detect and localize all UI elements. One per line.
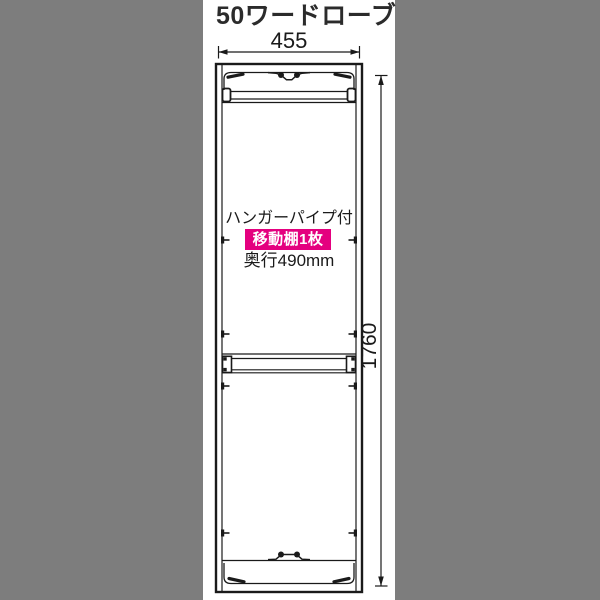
bottom-panel <box>222 552 356 584</box>
top-left-bracket-icon <box>228 74 243 77</box>
height-arrow-top-icon <box>378 76 384 86</box>
height-arrow-bottom-icon <box>378 577 384 587</box>
bottom-left-bracket-icon <box>229 579 244 582</box>
hanger-pipe-label: ハンガーパイプ付 <box>216 209 362 228</box>
bottom-center-clip-icon <box>268 552 310 560</box>
movable-shelf-badge: 移動棚1枚 <box>245 229 331 250</box>
hanger-pipe <box>222 89 356 103</box>
top-panel <box>224 72 354 90</box>
product-title: 50ワードローブ <box>216 2 362 30</box>
pipe-bracket-left-icon <box>223 89 231 102</box>
top-center-clip-icon <box>268 72 310 80</box>
shelf-pin-marks <box>221 237 357 537</box>
height-dimension-value: 1760 <box>359 314 381 378</box>
movable-shelf <box>222 354 356 373</box>
shelf-clip-left-icon <box>223 356 232 372</box>
product-diagram-page: 50ワードローブ 455 1760 ハンガーパイプ付 移動棚1枚 奥行490mm <box>0 0 600 600</box>
cabinet-outline <box>216 64 362 592</box>
shelf-clip-right-icon <box>347 356 356 372</box>
depth-label: 奥行490mm <box>216 250 362 271</box>
width-dimension-value: 455 <box>216 29 362 52</box>
pipe-bracket-right-icon <box>348 89 356 102</box>
bottom-right-bracket-icon <box>334 579 349 582</box>
wardrobe-diagram <box>0 0 600 600</box>
top-right-bracket-icon <box>335 74 350 77</box>
